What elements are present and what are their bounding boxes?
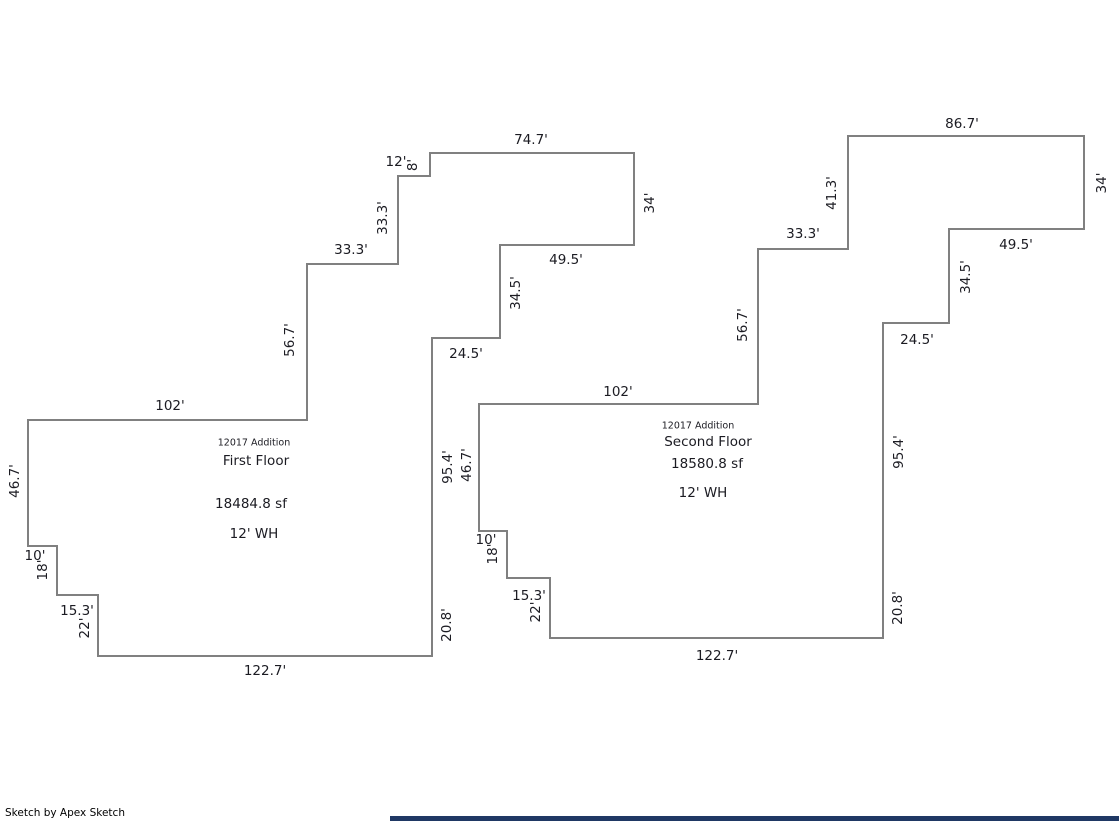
dimension-label: 56.7' — [282, 323, 298, 357]
dimension-label: 24.5' — [449, 346, 483, 362]
bottom-bar — [390, 816, 1119, 821]
dimension-label: 102' — [155, 398, 184, 414]
dimension-label: 33.3' — [786, 226, 820, 242]
dimension-label: 33.3' — [375, 201, 391, 235]
dimension-label: 34.5' — [508, 276, 524, 310]
dimension-label: 10' — [476, 532, 497, 548]
second-floor-outline — [479, 136, 1084, 638]
dimension-label: 18' — [35, 560, 51, 581]
dimension-label: 12' — [386, 154, 407, 170]
dimension-label: 74.7' — [514, 132, 548, 148]
dimension-label: 20.8' — [439, 608, 455, 642]
floor-plan-canvas: 74.7'12'8'34'49.5'34.5'24.5'33.3'33.3'56… — [0, 0, 1119, 821]
second-floor-area-label: 18580.8 sf — [671, 456, 744, 472]
dimension-label: 34' — [642, 193, 658, 214]
sketch-page: 74.7'12'8'34'49.5'34.5'24.5'33.3'33.3'56… — [0, 0, 1119, 821]
dimension-label: 102' — [603, 384, 632, 400]
second-floor-wall-height-label: 12' WH — [679, 485, 728, 501]
dimension-label: 56.7' — [735, 308, 751, 342]
dimension-label: 86.7' — [945, 116, 979, 132]
dimension-label: 49.5' — [999, 237, 1033, 253]
sketch-credit: Sketch by Apex Sketch — [5, 807, 125, 819]
dimension-label: 122.7' — [696, 648, 738, 664]
dimension-label: 34.5' — [958, 260, 974, 294]
dimension-label: 46.7' — [7, 464, 23, 498]
dimension-label: 8' — [405, 159, 421, 171]
dimension-label: 15.3' — [60, 603, 94, 619]
first-floor-area-label: 18484.8 sf — [215, 496, 288, 512]
dimension-label: 46.7' — [459, 448, 475, 482]
dimension-label: 15.3' — [512, 588, 546, 604]
first-floor-name-label: First Floor — [223, 453, 290, 469]
dimension-label: 122.7' — [244, 663, 286, 679]
dimension-label: 20.8' — [890, 591, 906, 625]
first-floor-addition-label: 12017 Addition — [218, 438, 290, 449]
dimension-label: 49.5' — [549, 252, 583, 268]
dimension-label: 24.5' — [900, 332, 934, 348]
dimension-label: 95.4' — [440, 450, 456, 484]
dimension-label: 95.4' — [891, 435, 907, 469]
dimension-label: 34' — [1094, 173, 1110, 194]
second-floor-name-label: Second Floor — [664, 434, 752, 450]
first-floor-wall-height-label: 12' WH — [230, 526, 279, 542]
dimension-label: 22' — [77, 618, 93, 639]
dimension-label: 33.3' — [334, 242, 368, 258]
dimension-label: 41.3' — [824, 176, 840, 210]
second-floor-addition-label: 12017 Addition — [662, 421, 734, 432]
dimension-label: 22' — [528, 602, 544, 623]
